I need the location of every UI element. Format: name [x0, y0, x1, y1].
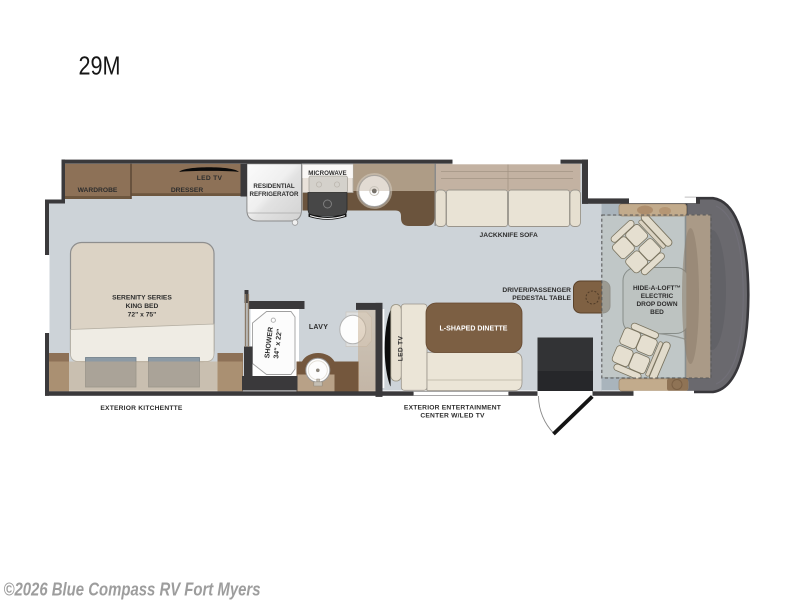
svg-text:PEDESTAL TABLE: PEDESTAL TABLE	[512, 295, 571, 302]
svg-text:BED: BED	[650, 309, 664, 316]
svg-text:L-SHAPED DINETTE: L-SHAPED DINETTE	[440, 324, 508, 333]
svg-text:CENTER W/LED TV: CENTER W/LED TV	[420, 412, 485, 419]
svg-text:DRESSER: DRESSER	[171, 187, 204, 194]
svg-text:KING BED: KING BED	[126, 303, 159, 310]
svg-text:SERENITY SERIES: SERENITY SERIES	[112, 295, 172, 302]
svg-text:HIDE-A-LOFT™: HIDE-A-LOFT™	[633, 285, 681, 292]
svg-text:DRIVER/PASSENGER: DRIVER/PASSENGER	[502, 287, 571, 294]
svg-text:LAVY: LAVY	[309, 324, 328, 331]
svg-text:JACKKNIFE SOFA: JACKKNIFE SOFA	[480, 232, 539, 239]
svg-text:72" x 75": 72" x 75"	[128, 312, 157, 319]
svg-text:DROP DOWN: DROP DOWN	[636, 301, 677, 308]
svg-text:ELECTRIC: ELECTRIC	[641, 293, 674, 300]
svg-text:EXTERIOR KITCHENTTE: EXTERIOR KITCHENTTE	[100, 405, 183, 412]
svg-text:LED TV: LED TV	[197, 175, 223, 182]
svg-text:RESIDENTIAL: RESIDENTIAL	[253, 183, 294, 190]
svg-text:MICROWAVE: MICROWAVE	[308, 170, 346, 177]
svg-text:EXTERIOR ENTERTAINMENT: EXTERIOR ENTERTAINMENT	[404, 405, 502, 412]
svg-text:29M: 29M	[79, 51, 121, 81]
svg-text:©2026 Blue Compass RV Fort Mye: ©2026 Blue Compass RV Fort Myers	[4, 580, 261, 600]
svg-text:REFRIGERATOR: REFRIGERATOR	[250, 191, 299, 198]
svg-text:LED TV: LED TV	[397, 335, 404, 361]
svg-text:WARDROBE: WARDROBE	[78, 187, 118, 194]
